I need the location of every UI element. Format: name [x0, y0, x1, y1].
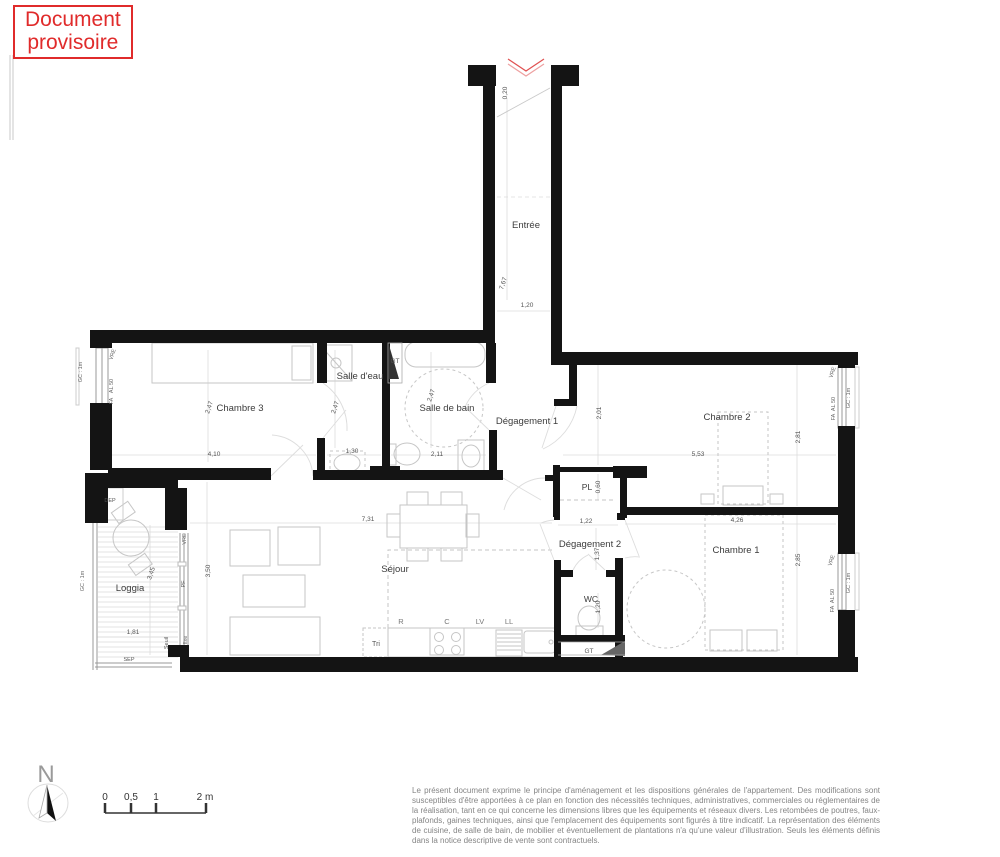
dining-table	[387, 492, 479, 561]
window-label-fa-chambre2: FA	[831, 413, 837, 420]
dim-7-31: 7,31	[362, 516, 375, 523]
dim-2-01: 2,01	[596, 406, 603, 419]
dim-0-20: 0,20	[502, 86, 509, 99]
dim-0-60: 0,60	[595, 480, 602, 493]
bathtub	[405, 342, 485, 367]
dim-3-45: 3,45	[146, 566, 157, 581]
window-label-fixe-sejour: fixe	[183, 636, 189, 645]
room-label-salle-de-bain: Salle de bain	[420, 403, 475, 414]
room-label-chambre-1: Chambre 1	[713, 545, 760, 556]
window-label-al50-chambre2: AL 50	[831, 397, 837, 411]
bed-chambre3	[152, 343, 313, 383]
north-needle-light	[39, 785, 47, 818]
dim-2-85: 2,85	[795, 553, 802, 566]
dim-1-22: 1,22	[580, 518, 593, 525]
dim-4-26: 4,26	[731, 517, 744, 524]
scale-label-0: 0	[102, 792, 108, 803]
window-label-pf-sejour: PF	[181, 580, 187, 588]
label-tri: Tri	[372, 641, 380, 648]
dim-1-81: 1,81	[127, 629, 140, 636]
north-letter: N	[37, 761, 54, 788]
room-label-entree: Entrée	[512, 220, 540, 231]
label-gt-wc: GT	[584, 648, 593, 655]
window-label-vre-chambre2: VRE	[828, 366, 837, 379]
dim-1-30: 1,30	[346, 448, 359, 455]
dim-2-47-chambre3: 2,47	[204, 400, 215, 415]
window-label-vre-sejour: VRE	[182, 533, 188, 545]
label-gt-salle-deau: GT	[390, 358, 399, 365]
page: { "stamp": { "line1": "Document", "line2…	[0, 0, 1000, 857]
dim-5-53: 5,53	[692, 451, 705, 458]
loggia-table	[111, 501, 152, 575]
label-seuil: Seuil	[164, 637, 170, 649]
room-label-sejour: Séjour	[381, 564, 408, 575]
label-sep: SEP	[123, 657, 134, 663]
scale-label-2m: 2 m	[197, 792, 214, 803]
dim-1-20-wc: 1,20	[595, 600, 602, 613]
label-kitchen-r: R	[398, 617, 404, 626]
window-label-vre-chambre1: VRE	[827, 554, 836, 567]
window-label-vre-chambre3: VRE	[108, 348, 117, 361]
room-label-loggia: Loggia	[116, 583, 145, 594]
bed-chambre2	[701, 412, 783, 505]
window-label-al50-chambre1: AL 50	[830, 589, 836, 603]
page-edge-lines	[10, 55, 13, 140]
scale-label-05: 0,5	[124, 792, 138, 803]
walls	[85, 65, 858, 672]
toilet-salle-de-bain	[385, 443, 420, 465]
furniture	[111, 342, 783, 657]
vanity-salle-de-bain	[458, 440, 484, 473]
dim-1-20-entree: 1,20	[521, 302, 534, 309]
dim-2-47-salle-de-bain: 2,47	[426, 388, 437, 403]
window-label-gc1m-chambre3: GC : 1m	[78, 361, 84, 382]
window-label-gc1m-chambre1: GC : 1m	[846, 572, 852, 593]
dim-2-81: 2,81	[795, 430, 802, 443]
label-dep: DEP	[104, 498, 116, 504]
sofa-group	[230, 527, 320, 655]
bed-chambre1	[627, 515, 783, 651]
stamp-line-2: provisoire	[25, 31, 121, 54]
dim-2-11: 2,11	[431, 451, 444, 458]
north-compass	[28, 784, 68, 822]
room-label-degagement-1: Dégagement 1	[496, 416, 558, 427]
room-label-pl: PL	[582, 482, 593, 492]
window-label-gc1m-chambre2: GC : 1m	[846, 387, 852, 408]
room-label-salle-deau: Salle d'eau	[337, 371, 384, 382]
window-label-fa-chambre3: FA	[109, 397, 115, 404]
label-kitchen-ll: LL	[505, 617, 513, 626]
room-label-chambre-3: Chambre 3	[217, 403, 264, 414]
provisional-stamp: Document provisoire	[13, 5, 133, 59]
label-kitchen-lv: LV	[476, 617, 485, 626]
window-label-gc1m-loggia: GC : 1m	[80, 570, 86, 591]
dim-4-10: 4,10	[208, 451, 221, 458]
scale-bar	[105, 803, 206, 813]
dim-3-50: 3,50	[205, 564, 212, 577]
stamp-line-1: Document	[25, 8, 121, 31]
room-label-chambre-2: Chambre 2	[704, 412, 751, 423]
scale-label-1: 1	[153, 792, 159, 803]
entrance-arrow	[508, 59, 544, 76]
window-sejour-loggia	[178, 533, 188, 645]
dim-2-47-salle-deau: 2,47	[330, 400, 341, 415]
label-kitchen-c: C	[444, 617, 450, 626]
floor-plan-svg: EntréeChambre 3Salle d'eauSalle de bainD…	[0, 0, 1000, 857]
window-label-fa-chambre1: FA	[830, 605, 836, 612]
window-label-al50-chambre3: AL 50	[109, 379, 115, 393]
plan-texts: EntréeChambre 3Salle d'eauSalle de bainD…	[37, 86, 852, 803]
north-needle-dark	[47, 785, 56, 821]
room-label-degagement-2: Dégagement 2	[559, 539, 621, 550]
dim-1-37: 1,37	[594, 547, 601, 560]
legal-disclaimer: Le présent document exprime le principe …	[412, 786, 880, 846]
